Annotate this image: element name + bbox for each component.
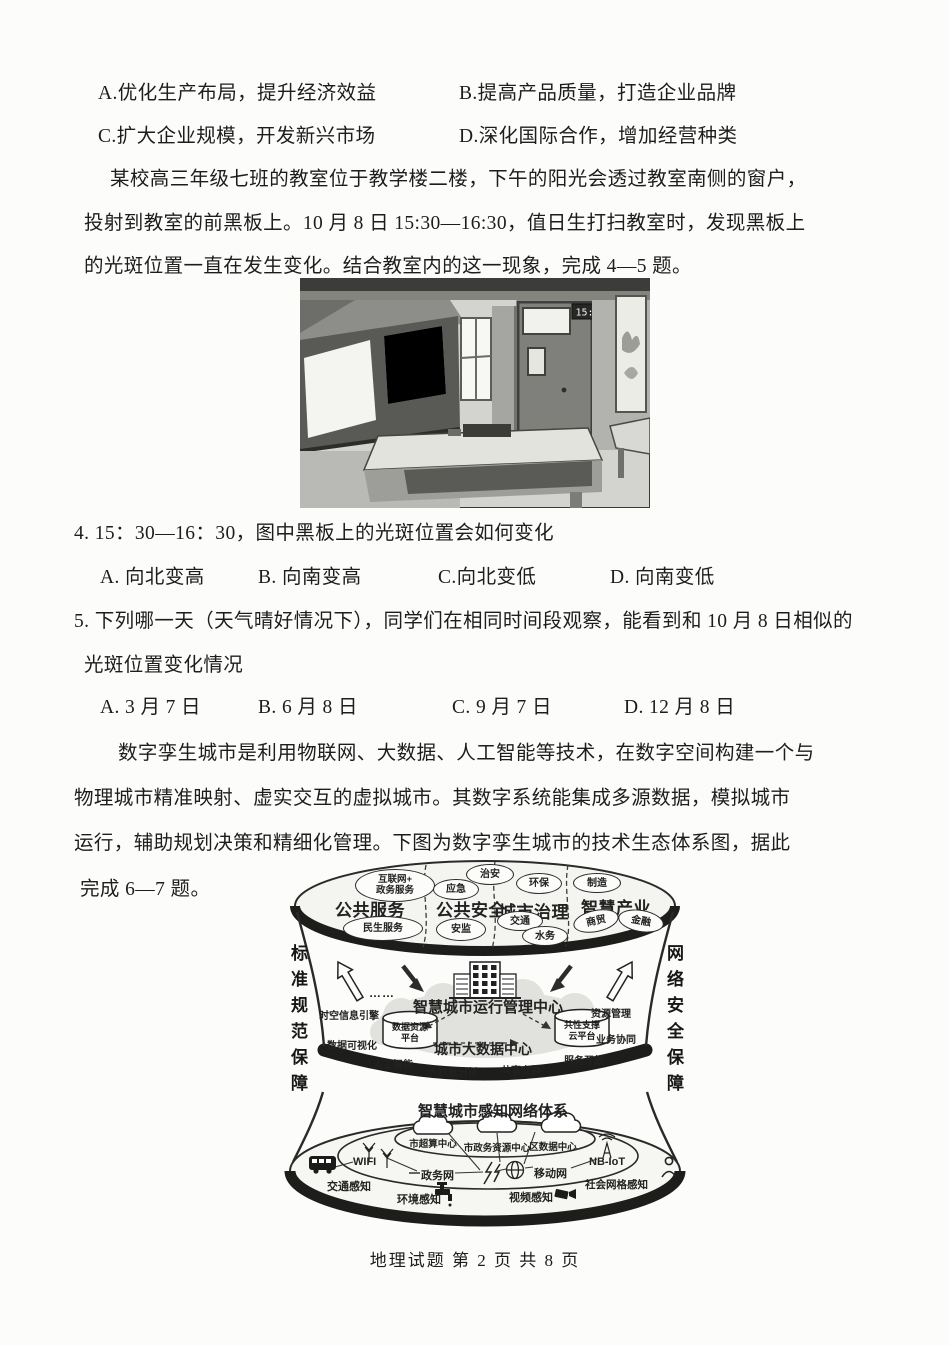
label-district-data-center: 区数据中心 [523,1139,583,1153]
twin-city-diagram: 标准规范保障 网络安全保障 公共服务 公共安全 城市治理 智慧产业 互联网+ 政… [283,856,703,1241]
building-icon [449,962,521,998]
prev-option-d: D.深化国际合作，增加经营种类 [459,119,737,148]
passage2-line3: 运行，辅助规划决策和精细化管理。下图为数字孪生城市的技术生态体系图，据此 [74,826,790,855]
label-bigdata-analysis: 大数据分析 [428,1064,478,1079]
prev-option-a: A.优化生产布局，提升经济效益 [98,76,376,105]
sector-public-safety: 公共安全 [436,896,506,921]
passage1-line3: 的光斑位置一直在发生变化。结合教室内的这一现象，完成 4—5 题。 [84,249,692,278]
label-mobile-net: 移动网 [534,1165,567,1181]
label-ai: 人工智能 [373,1056,413,1071]
cylinder-data-resource-label: 数据资源 平台 [383,1022,437,1045]
passage2-line1: 数字孪生城市是利用物联网、大数据、人工智能等技术，在数字空间构建一个与 [118,736,815,765]
question5-option-c: C. 9 月 7 日 [452,690,552,719]
label-sense-environment: 环境感知 [397,1191,441,1207]
bubble-water: 水务 [522,926,568,946]
label-sense-social-grid: 社会网格感知 [585,1177,648,1192]
sense-network-title: 智慧城市感知网络体系 [408,1100,578,1121]
label-visualization: 数据可视化 [327,1037,377,1052]
label-business-collab: 业务协同 [596,1031,636,1046]
classroom-photo: 15:30 [300,278,650,508]
question4-option-c: C.向北变低 [438,560,536,589]
bubble-internet-gov: 互联网+ 政务服务 [355,869,435,902]
page-footer: 地理试题 第 2 页 共 8 页 [0,1246,950,1271]
ops-center-title: 智慧城市运行管理中心 [388,996,588,1017]
question5-option-d: D. 12 月 8 日 [624,690,735,719]
up-left-arrow-icon [338,962,363,1001]
left-guarantee-label: 标准规范保障 [285,944,310,1129]
up-right-arrow-icon [607,962,632,1001]
prev-option-b: B.提高产品质量，打造企业品牌 [459,76,736,105]
label-resource-mgmt: 资源管理 [591,1005,631,1020]
question5-stem-line2: 光斑位置变化情况 [84,648,243,677]
label-share-exchange: 共享交换 [501,1062,541,1077]
bubble-safety-supervision: 安监 [436,918,486,941]
down-right-arrow-icon [403,966,424,992]
label-spatiotemporal: 时空信息引擎 [319,1007,379,1022]
passage2-line4: 完成 6—7 题。 [80,872,210,901]
question5-option-b: B. 6 月 8 日 [258,690,358,719]
label-sense-traffic: 交通感知 [327,1178,371,1194]
big-data-center-title: 城市大数据中心 [418,1039,548,1059]
passage2-line2: 物理城市精准映射、虚实交互的虚拟城市。其数字系统能集成多源数据，模拟城市 [74,781,790,810]
ellipsis-dots: …… [369,986,395,1000]
down-left-arrow-icon [550,966,571,992]
question4-option-a: A. 向北变高 [100,560,205,589]
label-nbiot: NB-IoT [589,1156,625,1168]
label-wifi: WIFI [353,1156,376,1168]
bubble-manufacturing: 制造 [573,873,621,893]
question4-option-b: B. 向南变高 [258,560,362,589]
passage1-line1: 某校高三年级七班的教室位于教学楼二楼，下午的阳光会透过教室南侧的窗户， [110,162,807,191]
question5-stem-line1: 5. 下列哪一天（天气晴好情况下），同学们在相同时间段观察，能看到和 10 月 … [74,604,853,633]
bubble-environment: 环保 [516,873,562,894]
passage1-line2: 投射到教室的前黑板上。10 月 8 日 15:30—16:30，值日生打扫教室时… [84,206,806,235]
bubble-livelihood: 民生服务 [343,916,423,941]
label-sense-video: 视频感知 [509,1189,553,1205]
question4-stem: 4. 15：30—16：30，图中黑板上的光斑位置会如何变化 [74,516,554,545]
question5-option-a: A. 3 月 7 日 [100,690,201,719]
label-gov-net: 政务网 [421,1167,454,1183]
label-service-open: 服务开放 [564,1052,604,1067]
bubble-emergency: 应急 [433,879,479,900]
exam-page: A.优化生产布局，提升经济效益 B.提高产品质量，打造企业品牌 C.扩大企业规模… [0,0,950,1345]
right-guarantee-label: 网络安全保障 [661,944,686,1129]
prev-option-c: C.扩大企业规模，开发新兴市场 [98,119,375,148]
question4-option-d: D. 向南变低 [610,560,715,589]
